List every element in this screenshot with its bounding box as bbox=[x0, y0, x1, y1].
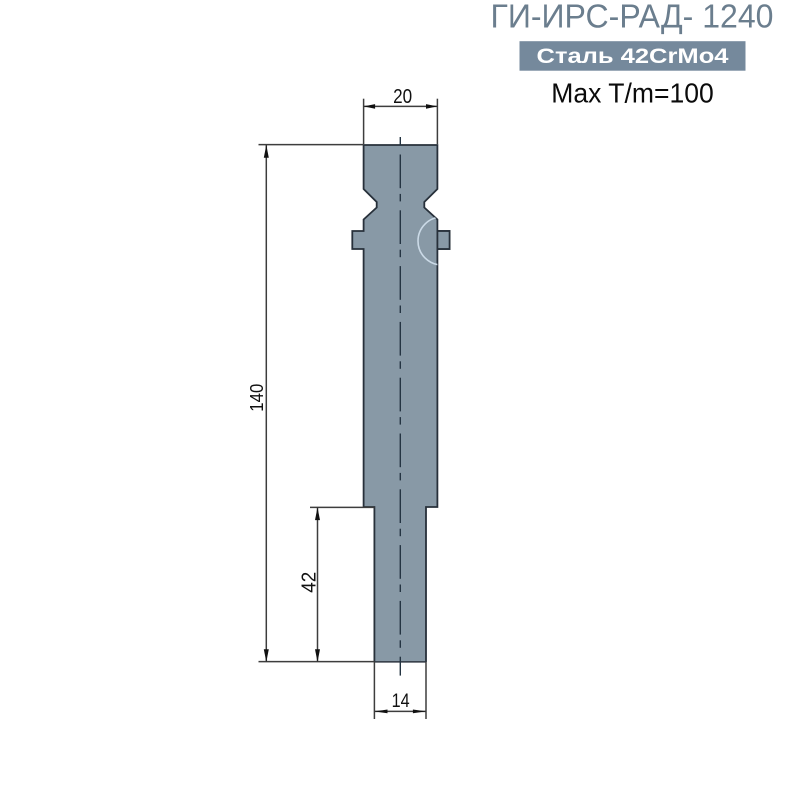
svg-text:42: 42 bbox=[298, 572, 320, 593]
svg-text:Max T/m=100: Max T/m=100 bbox=[551, 78, 714, 109]
svg-text:ГИ-ИРС-РАД- 1240: ГИ-ИРС-РАД- 1240 bbox=[491, 0, 774, 35]
svg-text:14: 14 bbox=[392, 691, 410, 712]
svg-text:20: 20 bbox=[393, 86, 412, 108]
svg-text:140: 140 bbox=[247, 384, 267, 412]
svg-text:Сталь 42CrMo4: Сталь 42CrMo4 bbox=[537, 45, 729, 68]
